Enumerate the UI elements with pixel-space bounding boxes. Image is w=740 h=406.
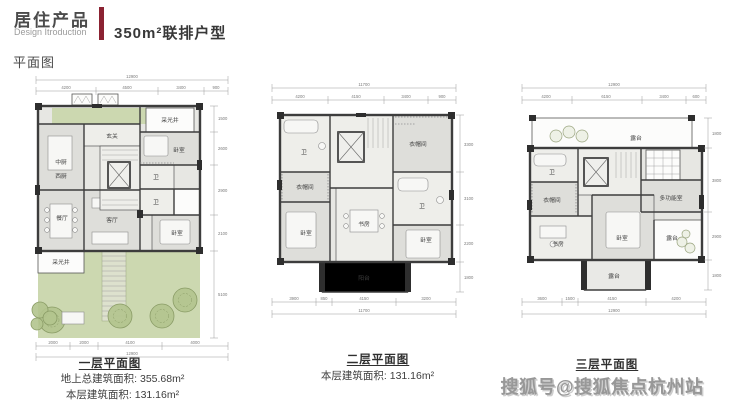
caption-floor-3: 三层平面图 [532,356,682,372]
room-label: 采光井 [161,116,179,124]
svg-text:4000: 4000 [190,340,200,345]
room-label: 书房 [552,240,564,248]
room-label: 多功能室 [659,194,682,202]
terrace-right [654,220,702,260]
dim-text: 12900 [126,74,138,79]
svg-text:850: 850 [321,296,329,301]
area-floor-2: 本层建筑面积: 131.16m² [285,368,470,384]
room-label: 卫 [301,149,307,156]
dimension-right: 1800 3800 2900 1800 [704,118,722,290]
svg-text:2100: 2100 [218,231,228,236]
roof-terrace [529,115,695,148]
svg-text:4150: 4150 [359,296,369,301]
svg-text:2000: 2000 [48,340,58,345]
svg-text:3400: 3400 [401,94,411,99]
room-label: 露台 [630,134,642,142]
elevator-icon [338,132,364,162]
dim-text: 900 [213,85,221,90]
svg-text:1800: 1800 [464,275,474,280]
room-label: 卧室 [420,236,432,244]
dim-text: 4200 [61,85,71,90]
room-label: 衣帽间 [543,196,561,204]
room-label: 卧室 [173,146,185,154]
svg-text:2000: 2000 [79,340,89,345]
area-line: 本层建筑面积: 131.16m² [285,368,470,384]
room-label: 衣帽间 [296,183,314,191]
floor-plan-3: 12900 4200 6150 3400 600 [506,80,731,352]
svg-text:4150: 4150 [351,94,361,99]
dimension-top: 11700 4200 4150 3400 900 [272,82,456,104]
floor-plan-1: 12900 4200 4500 3400 900 [22,70,252,362]
svg-text:600: 600 [693,94,701,99]
svg-text:4100: 4100 [125,340,135,345]
room-label: 卧室 [300,229,312,237]
caption-floor-2: 二层平面图 [303,351,453,367]
svg-text:1800: 1800 [712,273,722,278]
tree-icon [173,288,197,312]
svg-text:2600: 2600 [218,146,228,151]
svg-text:2900: 2900 [712,234,722,239]
slide-canvas: { "header": { "title_cn": "居住产品", "title… [0,0,740,406]
room-label: 采光井 [52,258,70,266]
room-label: 玄关 [106,132,118,140]
svg-text:1500: 1500 [218,116,228,121]
tree-icon [150,304,174,328]
elevator-icon [584,158,608,186]
svg-text:11700: 11700 [358,82,370,87]
room-label: 书房 [358,220,370,228]
section-label: 平面图 [13,52,55,71]
room-label: 西厨 [55,173,67,180]
svg-text:12900: 12900 [608,308,620,313]
dimension-right: 1500 2600 2900 2100 5100 [210,106,228,338]
svg-text:4200: 4200 [541,94,551,99]
svg-text:900: 900 [439,94,447,99]
area-line: 本层建筑面积: 131.16m² [25,387,220,403]
svg-text:3900: 3900 [289,296,299,301]
svg-text:1800: 1800 [712,131,722,136]
svg-text:3600: 3600 [537,296,547,301]
dimension-top: 12900 4200 4500 3400 900 [36,74,228,95]
svg-text:3300: 3300 [464,142,474,147]
svg-text:4150: 4150 [607,296,617,301]
svg-text:12900: 12900 [608,82,620,87]
svg-text:4200: 4200 [671,296,681,301]
dim-text: 4500 [122,85,132,90]
room-label: 客厅 [106,216,118,224]
dimension-bottom: 3600 1500 4150 4200 12900 [522,296,706,318]
room-label: 衣帽间 [409,140,427,148]
room-label: 卧室 [616,234,628,242]
svg-text:4200: 4200 [295,94,305,99]
dimension-right: 3300 3100 2200 1800 [456,115,474,292]
caption-floor-1: 一层平面图 [35,355,185,371]
svg-text:2900: 2900 [218,188,228,193]
room-label: 露台 [608,272,620,280]
floor-plan-2: 11700 4200 4150 3400 900 [256,80,481,352]
dimension-bottom: 3900 850 4150 3200 11700 [272,296,456,318]
skylight-grid [646,150,680,180]
svg-text:2200: 2200 [464,241,474,246]
room-label: 露台 [666,234,678,242]
room-label: 阳台 [358,274,370,282]
area-floor-1: 地上总建筑面积: 355.68m² 本层建筑面积: 131.16m² [25,371,220,403]
svg-text:6150: 6150 [601,94,611,99]
room-label: 卫 [549,169,555,176]
dim-text: 3400 [176,85,186,90]
svg-text:11700: 11700 [358,308,370,313]
room-label: 卫 [419,203,425,210]
room-label: 中厨 [55,158,67,166]
svg-text:3200: 3200 [421,296,431,301]
svg-text:3400: 3400 [659,94,669,99]
accent-divider [99,7,104,40]
lightwell-notch [174,189,200,215]
area-line: 地上总建筑面积: 355.68m² [25,371,220,387]
elevator-icon [108,162,130,188]
svg-text:1500: 1500 [565,296,575,301]
svg-text:3800: 3800 [712,178,722,183]
page-title-en: Design Itroduction [14,27,87,37]
room-label: 餐厅 [56,214,68,222]
unit-type-subtitle: 350m²联排户型 [114,22,226,43]
svg-text:5100: 5100 [218,292,228,297]
room-label: 卫 [153,174,159,181]
watermark: 搜狐号@搜狐焦点杭州站 [468,373,736,399]
room-label: 卧室 [171,229,183,237]
tree-icon [108,304,132,328]
dimension-top: 12900 4200 6150 3400 600 [522,82,706,104]
room-label: 卫 [153,199,159,206]
svg-text:3100: 3100 [464,196,474,201]
